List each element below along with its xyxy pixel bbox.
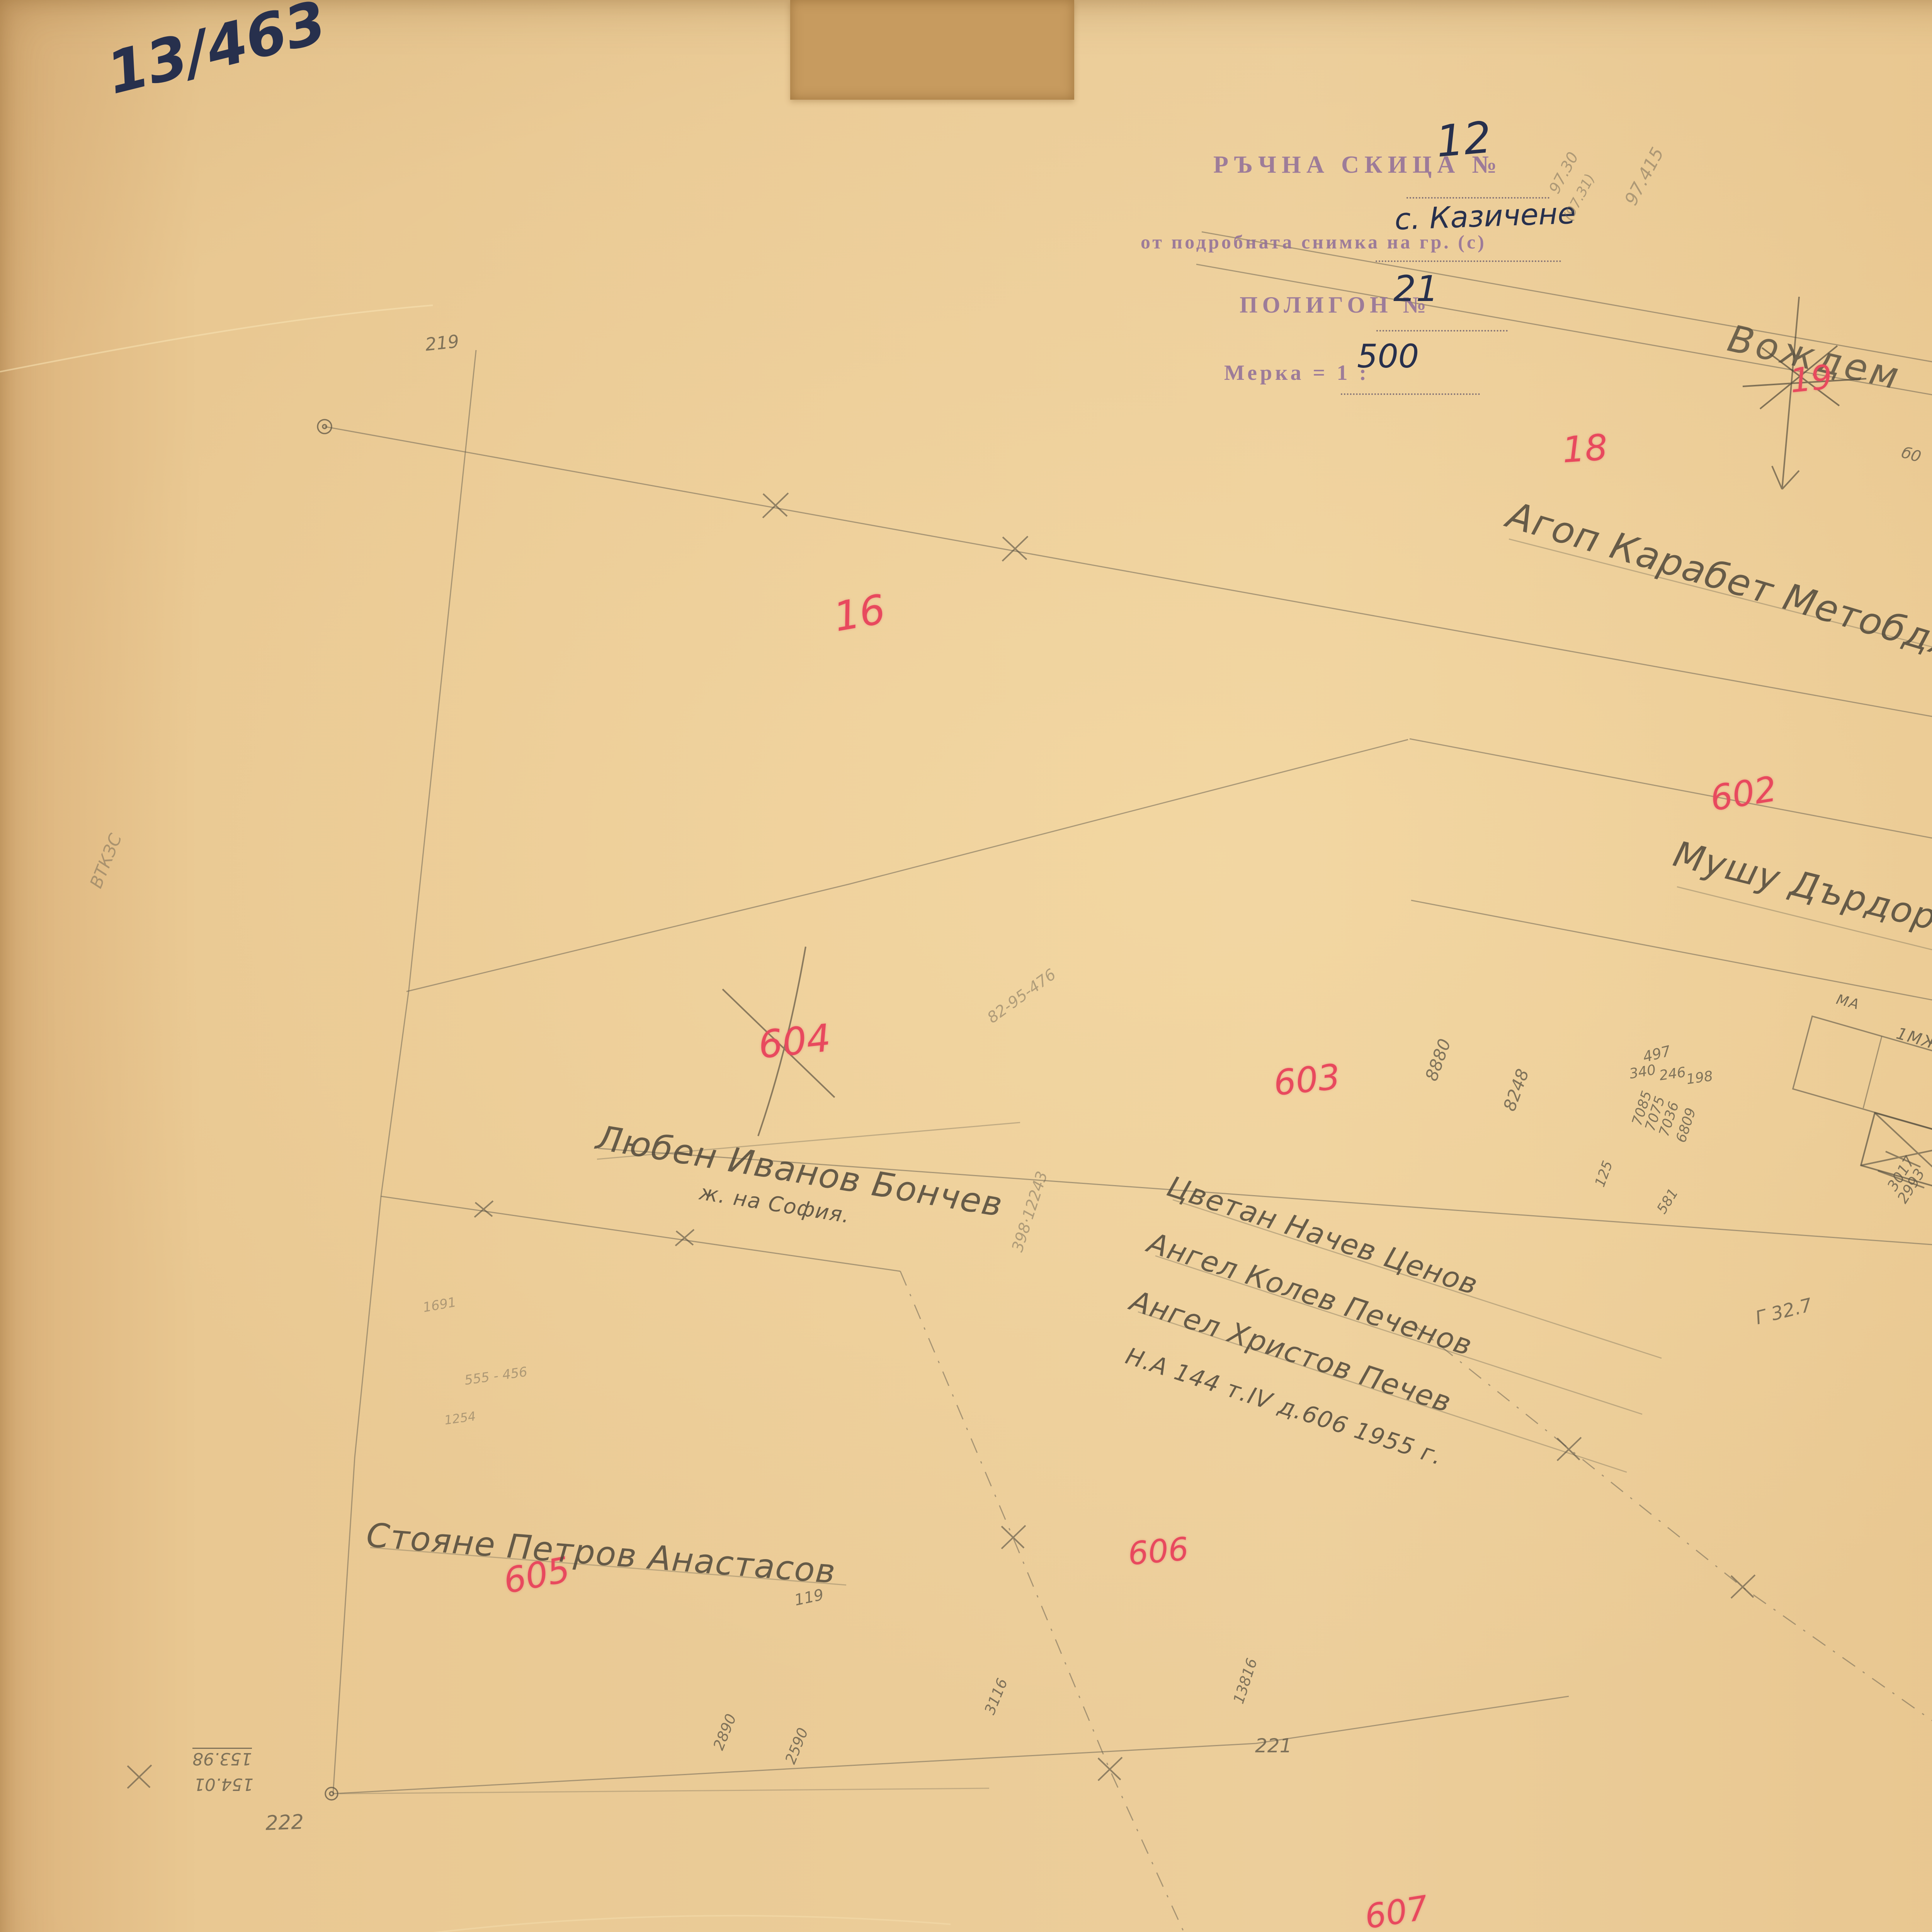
scanned-cadastral-sketch: РЪЧНА СКИЦА № 12 от подробната снимка на… [0, 0, 1932, 1932]
parcel-number: 16 [831, 588, 888, 639]
parcel-number: 603 [1272, 1059, 1342, 1102]
survey-number: 154.01 [194, 1775, 253, 1793]
survey-number: 153.98 [192, 1748, 252, 1767]
dotted-line [1376, 329, 1508, 332]
survey-number: 222 [265, 1812, 304, 1834]
settlement-name: с. Казичене [1394, 198, 1576, 235]
scale-value: 500 [1357, 339, 1419, 373]
dotted-line [1341, 393, 1480, 395]
parcel-number: 18 [1561, 429, 1609, 469]
parcel-number: 604 [757, 1018, 833, 1065]
survey-number: 221 [1255, 1736, 1292, 1756]
survey-number: 246 [1658, 1065, 1687, 1083]
survey-number: 219 [424, 332, 460, 354]
parcel-number: 19 [1788, 360, 1834, 399]
scale-label: Мерка = 1 : [1224, 362, 1369, 384]
parcel-number: 602 [1708, 771, 1779, 817]
parcel-number: 607 [1362, 1890, 1430, 1932]
sketch-number: 12 [1434, 115, 1493, 165]
parcel-number: 606 [1127, 1532, 1190, 1571]
tape-patch [790, 0, 1074, 100]
polygon-number: 21 [1393, 270, 1439, 308]
survey-number: 198 [1685, 1069, 1714, 1087]
dotted-line [1376, 260, 1561, 262]
paper-sheet [0, 0, 1932, 1932]
